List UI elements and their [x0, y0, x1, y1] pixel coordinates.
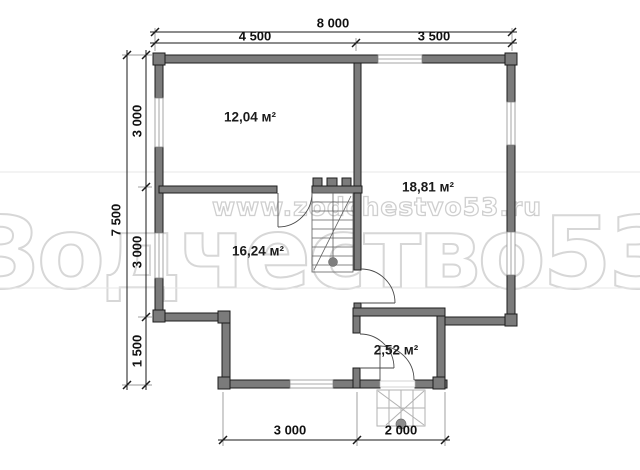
windows [155, 55, 515, 388]
dim-top-total: 8 000 [317, 16, 350, 31]
room-area-label-top-left: 12,04 м² [224, 110, 276, 125]
dim-left-upper: 3 000 [130, 105, 145, 138]
room-area-label-entry: 2,52 м² [374, 343, 419, 358]
dim-left-lower: 1 500 [130, 335, 145, 368]
interior-walls [159, 63, 445, 388]
dim-bottom-left: 3 000 [274, 423, 307, 438]
exterior-walls [153, 53, 517, 389]
room-area-label-right: 18,81 м² [402, 180, 454, 195]
floor-plan-drawing [0, 0, 640, 470]
floor-plan: Зодчество53 www.zodchestvo53.ru [0, 0, 640, 470]
room-area-label-bottom-left: 16,24 м² [232, 244, 284, 259]
dim-top-right: 3 500 [418, 29, 451, 44]
dim-left-total: 7 500 [109, 204, 124, 237]
dim-left-middle: 3 000 [130, 236, 145, 269]
dim-bottom-right: 2 000 [385, 423, 418, 438]
dim-top-left: 4 500 [239, 29, 272, 44]
